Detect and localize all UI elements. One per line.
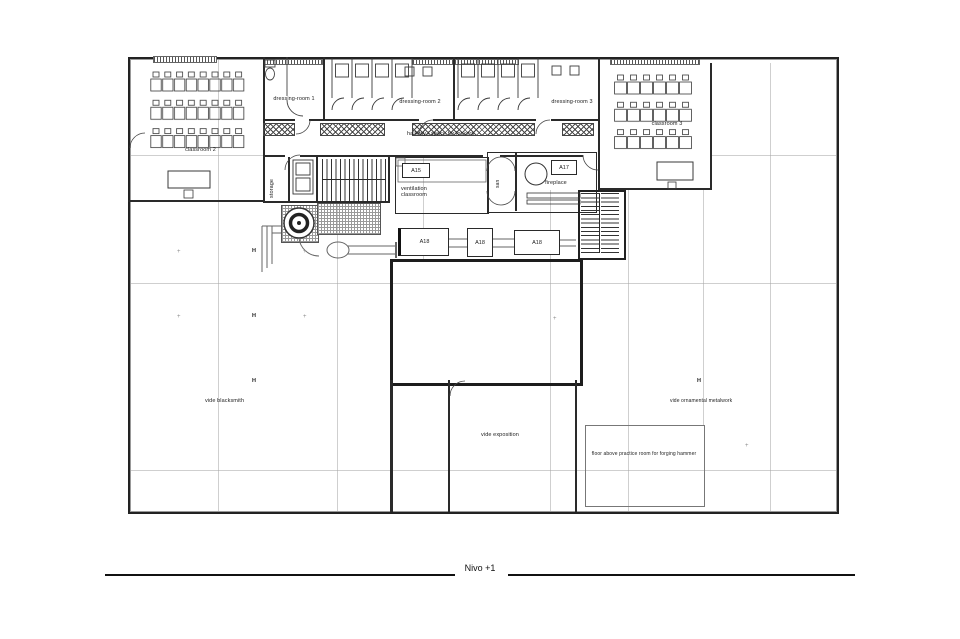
window-strip-dressing23 [412,59,519,65]
void-opening [390,259,583,386]
floor-plan-canvas: A18 A18 A18 A15 A17 classroom 2 dressing… [0,0,960,639]
label-floor-above: floor above practice room for forging ha… [584,452,704,458]
label-fireplace: fireplace [528,180,584,186]
stair-right-divider [599,193,600,253]
title-rule-left [105,574,455,576]
label-san: san [496,172,502,188]
floor-above-outline [585,425,705,507]
wall-dressing-bottom-a [265,119,295,121]
label-vide-exposition: vide exposition [465,432,535,438]
vent-pad-fan [281,205,319,243]
column-marker: H [252,378,256,384]
wall-hallway-bottom-a [263,155,285,157]
label-storage: storage [269,162,275,198]
wall-exposition-right [575,380,577,512]
wall-storage-right [288,157,290,201]
ahu-tag: A18 [420,239,430,245]
wall-corridor-right [448,380,450,512]
wall-classroom3-right [710,63,712,190]
ahu-tag: A18 [475,240,485,246]
label-classroom2: classroom 2 [173,147,228,153]
tag-a17: A17 [551,160,577,175]
wall-classroom3-bottom [600,188,712,190]
label-hallway: hallway / space for lockers [407,131,497,137]
label-vide-ornamental: vide ornamental metalwork [670,399,732,405]
locker-strip-1 [263,123,295,136]
wall-shaft-right [316,155,318,203]
tag-a17-text: A17 [559,165,569,171]
cross-marker: + [177,314,181,320]
stair-left-rail [322,179,386,180]
label-ventilation-classroom: ventilation classroom [401,186,441,199]
locker-strip-4 [562,123,594,136]
tag-a15: A15 [402,163,430,178]
column-marker: H [252,313,256,319]
wall-dressing-bottom-c [433,119,536,121]
label-classroom3: classroom 3 [638,121,696,127]
cross-marker: + [303,314,307,320]
wall-classroom2-bottom [128,200,265,202]
title-rule-right [508,574,855,576]
window-strip-dressing1 [263,59,323,65]
ahu-box-mid: A18 [467,228,493,257]
locker-strip-2 [320,123,385,136]
tag-a15-text: A15 [411,168,421,174]
wall-dressing-bottom-b [309,119,419,121]
wall-san-fireplace [515,152,517,211]
wall-block-right [388,155,390,203]
cross-marker: + [553,316,557,322]
label-dressing2: dressing-room 2 [392,99,448,105]
wall-dr1-dr2 [323,57,325,121]
sheet-title: Nivo +1 [435,563,525,573]
stair-right-flight-right [601,193,619,253]
window-strip-classroom2 [153,56,217,63]
label-dressing3: dressing-room 3 [544,99,600,105]
ahu-tag: A18 [532,240,542,246]
stair-right-flight-left [581,193,599,253]
wall-void-left-extension [390,380,393,512]
wall-dr3-classroom3 [598,57,600,190]
wall-dr2-dr3 [453,57,455,121]
label-dressing1: dressing-room 1 [267,96,321,102]
cross-marker: + [177,249,181,255]
ahu-box-right: A18 [514,230,560,255]
window-strip-classroom3 [610,59,700,65]
ahu-box-left: A18 [398,228,449,256]
column-marker: H [697,378,701,384]
column-marker: H [252,248,256,254]
vent-pad-duct [317,203,381,235]
cross-marker: + [745,443,749,449]
cross-marker: + [303,249,307,255]
stair-left-treads [322,159,386,201]
wall-dressing-bottom-d [551,119,598,121]
label-vide-blacksmith: vide blacksmith [205,398,244,404]
